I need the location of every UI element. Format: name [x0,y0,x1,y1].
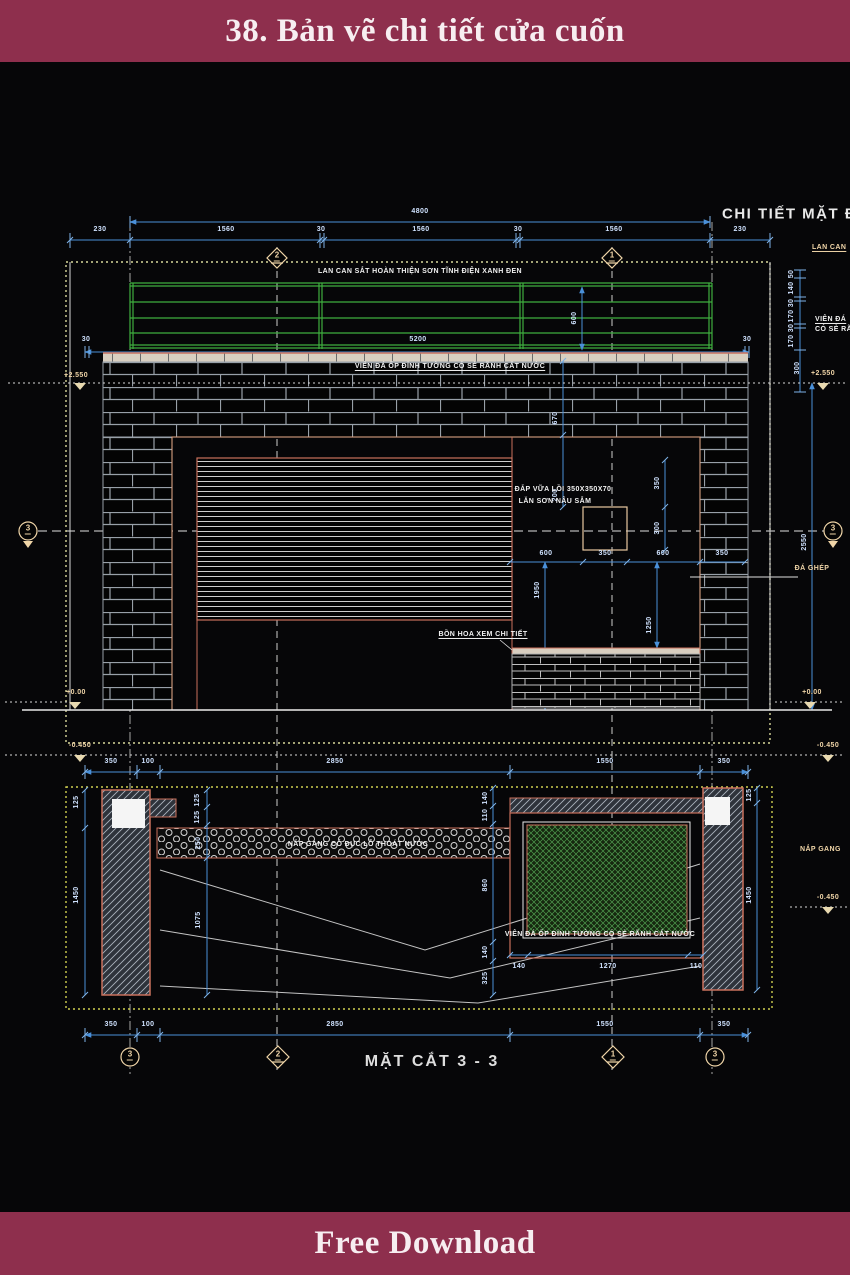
sec-125l: 125 [73,796,81,809]
bot-350b: 350 [718,1021,731,1029]
grid-bubble-1-bottom: 1 [610,1051,616,1061]
rm-170b: 170 [788,335,796,348]
stone-note: ĐÁ GHÉP [795,565,830,573]
mid-100: 100 [142,758,155,766]
free-download-label[interactable]: Free Download [314,1225,535,1262]
dim-sq-350b: 350 [716,550,729,558]
dim-5200: 5200 [409,336,426,344]
sec-ch-110: 110 [482,809,490,822]
footer-banner[interactable]: Free Download [0,1212,850,1275]
coping-note: VIÊN ĐÁ ỐP ĐỈNH TƯỜNG CÓ SẺ RÃNH CẮT NƯỚ… [355,363,545,371]
dim-1560-1: 1560 [217,226,234,234]
grid-bubble-1-top: 1 [609,252,615,262]
dim-1560-2: 1560 [412,226,429,234]
level-2550-right: +2.550 [811,370,835,378]
rm-170a: 170 [788,310,796,323]
mid-2850: 2850 [326,758,343,766]
dim-30-left: 30 [82,336,91,344]
mortar-note-1: ĐẮP VỮA LỒI 350X350X70 [515,486,612,494]
dim-sq-600b: 600 [657,550,670,558]
grid-bubble-2-bottom: 2 [275,1051,281,1061]
planter-note: BỒN HOA XEM CHI TIẾT [438,631,527,639]
sec-1450l: 1450 [73,886,81,903]
dim-600: 600 [571,312,579,325]
header-banner: 38. Bản vẽ chi tiết cửa cuốn [0,0,850,62]
rm-50: 50 [788,270,796,279]
sec-in-125a: 125 [194,794,202,807]
grid-bubble-2-top: 2 [274,252,280,262]
mid-1550: 1550 [596,758,613,766]
sec-125r: 125 [746,789,754,802]
rm-vien-da-2: CÓ SẺ RÃ [815,326,850,334]
section-bubble-3-left: 3 [25,525,31,535]
sec-ch-860: 860 [482,879,490,892]
sec-in-1075: 1075 [195,911,203,928]
sec-pl-140: 140 [513,963,526,971]
mid-350b: 350 [718,758,731,766]
section-bubble-3-right: 3 [830,525,836,535]
section-bubble-3-br: 3 [712,1051,718,1061]
rm-lan-can: LAN CAN [812,244,846,252]
mid-350a: 350 [105,758,118,766]
dim-1250: 1250 [646,616,654,633]
bot-350a: 350 [105,1021,118,1029]
level-zero-right: +0.00 [802,689,822,697]
dim-230-1: 230 [94,226,107,234]
dim-670: 670 [552,412,560,425]
level-2550-left: +2.550 [64,372,88,380]
page: 38. Bản vẽ chi tiết cửa cuốn [0,0,850,1275]
elevation-title: CHI TIẾT MẶT ĐỨNG [722,205,850,222]
level-neg-right2: -0.450 [817,894,839,902]
dim-total-4800: 4800 [411,208,428,216]
mortar-note-2: LĂN SƠN NÂU SẪM [519,498,592,506]
level-zero-left: +0.00 [66,689,86,697]
dim-230-2: 230 [734,226,747,234]
sec-ch-140a: 140 [482,792,490,805]
sec-ch-140b: 140 [482,946,490,959]
section-bubble-3-bl: 3 [127,1051,133,1061]
sec-coping-note: VIÊN ĐÁ ỐP ĐỈNH TƯỜNG CÓ SẺ RÃNH CẮT NƯỚ… [505,931,695,939]
dim-1560-3: 1560 [605,226,622,234]
rm-30a: 30 [788,299,796,308]
rm-140: 140 [788,282,796,295]
dim-1950: 1950 [534,581,542,598]
dim-sq-350a: 350 [599,550,612,558]
level-neg-left: -0.450 [69,742,91,750]
cad-drawing [0,62,850,1212]
level-neg-right: -0.450 [817,742,839,750]
rm-vien-da-1: VIÊN ĐÁ [815,316,846,324]
dim-30-right: 30 [743,336,752,344]
sec-in-125b: 125 [194,811,202,824]
section-title: MẶT CẮT 3 - 3 [365,1053,499,1071]
railing-note: LAN CAN SẮT HOÀN THIỆN SƠN TĨNH ĐIỆN XAN… [318,268,522,276]
grate-note: NẮP GANG CÓ ĐỤC LỖ THOÁT NƯỚC [288,841,428,849]
sec-pl-110: 110 [690,963,703,971]
rm-30b: 30 [788,324,796,333]
dim-30-2: 30 [514,226,523,234]
rm-nap-gang: NẮP GANG [800,846,841,854]
dim-sq-600a: 600 [540,550,553,558]
sec-in-250: 250 [195,837,203,850]
bot-1550: 1550 [596,1021,613,1029]
dim-30-1: 30 [317,226,326,234]
sec-ch-325: 325 [482,972,490,985]
dim-350v: 350 [654,477,662,490]
bot-100: 100 [142,1021,155,1029]
sec-pl-1270: 1270 [599,963,616,971]
cad-canvas: CHI TIẾT MẶT ĐỨNG 4800 230 1560 30 1560 … [0,62,850,1212]
rm-300: 300 [794,362,802,375]
dim-300v: 300 [654,522,662,535]
sec-1450r: 1450 [746,886,754,903]
dim-2550: 2550 [801,533,809,550]
page-title: 38. Bản vẽ chi tiết cửa cuốn [225,13,625,50]
bot-2850: 2850 [326,1021,343,1029]
